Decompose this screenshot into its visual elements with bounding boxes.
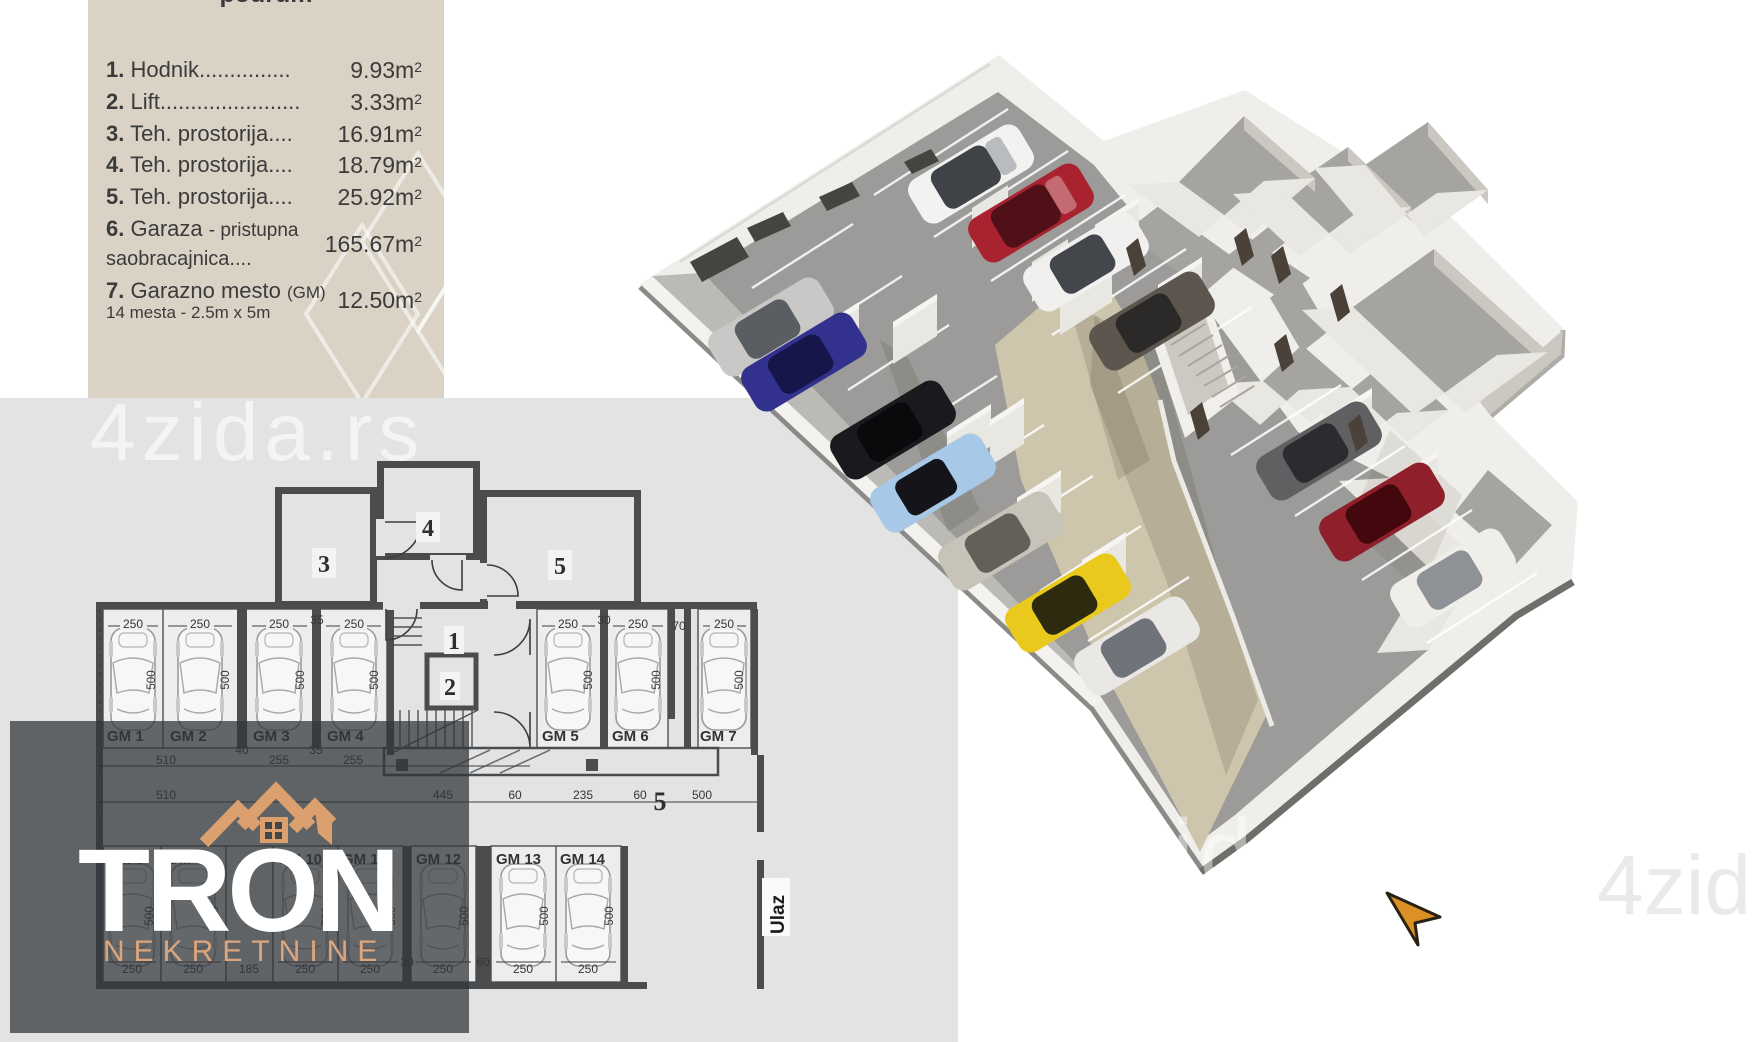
svg-text:4zid: 4zid xyxy=(1597,838,1751,932)
svg-text:4zida.rs: 4zida.rs xyxy=(1060,800,1441,906)
